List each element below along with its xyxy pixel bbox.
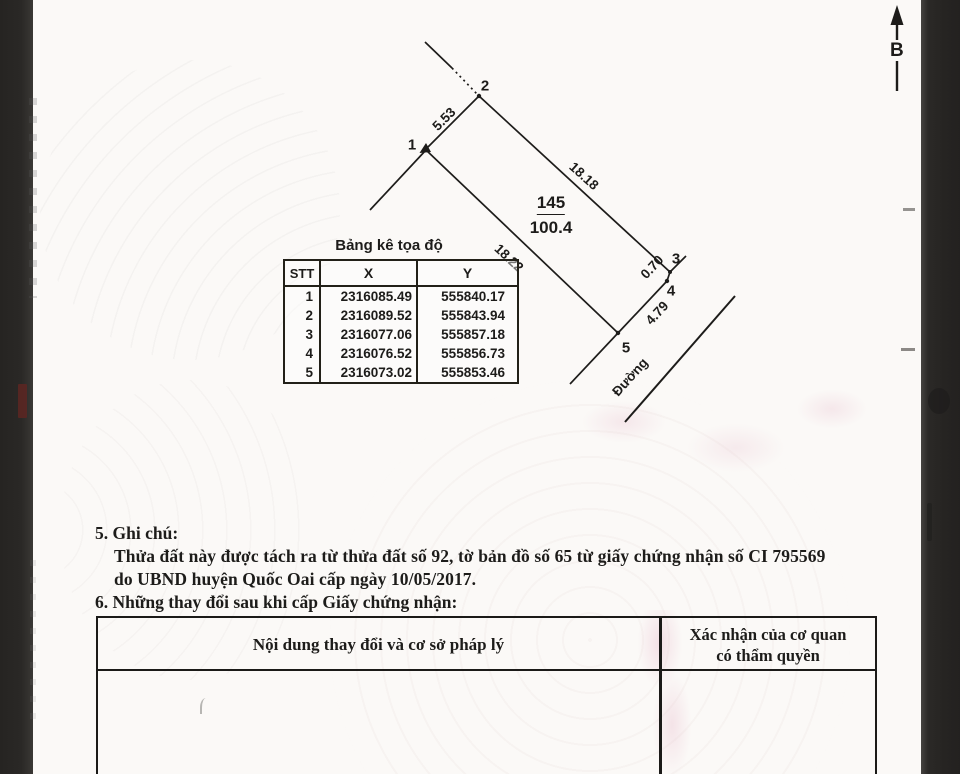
col-header-stt: STT bbox=[284, 260, 320, 286]
point-1-arrow-marker bbox=[420, 143, 432, 153]
changes-table-header-row: Nội dung thay đổi và cơ sở pháp lý Xác n… bbox=[98, 618, 875, 671]
scan-border-blob bbox=[928, 388, 950, 414]
cell-y: 555843.94 bbox=[417, 306, 518, 325]
changes-heading: 6. Những thay đổi sau khi cấp Giấy chứng… bbox=[95, 593, 457, 612]
cell-y: 555857.18 bbox=[417, 325, 518, 344]
boundary-extension-above-point2 bbox=[425, 42, 452, 68]
scan-artifact-tick bbox=[903, 208, 915, 211]
north-arrow-head bbox=[891, 5, 904, 25]
parcel-area: 100.4 bbox=[530, 218, 573, 238]
north-arrow-label: B bbox=[889, 40, 905, 61]
point-5-marker bbox=[616, 331, 620, 335]
point-4-label: 4 bbox=[667, 283, 675, 300]
cell-x: 2316076.52 bbox=[320, 344, 417, 363]
changes-table: Nội dung thay đổi và cơ sở pháp lý Xác n… bbox=[96, 616, 877, 774]
scan-artifact-tick bbox=[901, 348, 915, 351]
table-row: 3 2316077.06 555857.18 bbox=[284, 325, 518, 344]
table-row: 1 2316085.49 555840.17 bbox=[284, 286, 518, 306]
cell-stt: 2 bbox=[284, 306, 320, 325]
cell-y: 555853.46 bbox=[417, 363, 518, 383]
parcel-number: 145 bbox=[537, 193, 565, 215]
margin-text-fragments bbox=[30, 560, 36, 720]
cell-x: 2316085.49 bbox=[320, 286, 417, 306]
scanned-land-document-page: B 1 2 3 4 5 5.53 18.18 18.22 0.70 4.79 1… bbox=[0, 0, 960, 774]
changes-content-column-header: Nội dung thay đổi và cơ sở pháp lý bbox=[98, 618, 659, 671]
notes-heading: 5. Ghi chú: bbox=[95, 524, 178, 543]
cell-stt: 4 bbox=[284, 344, 320, 363]
changes-table-column-divider bbox=[659, 618, 662, 774]
changes-confirm-column-header: Xác nhận của cơ quan có thẩm quyền bbox=[661, 618, 875, 671]
cell-y: 555840.17 bbox=[417, 286, 518, 306]
boundary-extension-below-point5 bbox=[570, 333, 618, 384]
scan-border-streak bbox=[927, 503, 932, 541]
coordinate-table-block: Bảng kê tọa độ STT X Y 1 2316085.49 5558… bbox=[283, 237, 519, 384]
point-5-label: 5 bbox=[622, 340, 630, 357]
point-3-label: 3 bbox=[672, 251, 680, 268]
margin-text-fragments bbox=[29, 98, 37, 298]
red-margin-mark bbox=[18, 384, 27, 418]
point-3-marker bbox=[668, 270, 672, 274]
scan-border-right bbox=[921, 0, 960, 774]
coordinate-table: STT X Y 1 2316085.49 555840.17 2 2316089… bbox=[283, 259, 519, 384]
boundary-extension-below-point1 bbox=[370, 150, 426, 210]
confirm-header-line1: Xác nhận của cơ quan bbox=[690, 624, 847, 645]
cell-x: 2316073.02 bbox=[320, 363, 417, 383]
cell-stt: 3 bbox=[284, 325, 320, 344]
coordinate-table-header-row: STT X Y bbox=[284, 260, 518, 286]
confirm-header-line2: có thẩm quyền bbox=[716, 645, 820, 666]
cell-x: 2316077.06 bbox=[320, 325, 417, 344]
coordinate-table-title: Bảng kê tọa độ bbox=[283, 237, 495, 254]
table-row: 4 2316076.52 555856.73 bbox=[284, 344, 518, 363]
point-1-label: 1 bbox=[408, 137, 416, 154]
boundary-extension-dotted bbox=[452, 68, 477, 94]
cell-y: 555856.73 bbox=[417, 344, 518, 363]
cell-stt: 5 bbox=[284, 363, 320, 383]
cell-x: 2316089.52 bbox=[320, 306, 417, 325]
col-header-x: X bbox=[320, 260, 417, 286]
table-row: 2 2316089.52 555843.94 bbox=[284, 306, 518, 325]
col-header-y: Y bbox=[417, 260, 518, 286]
notes-body-line2: do UBND huyện Quốc Oai cấp ngày 10/05/20… bbox=[114, 570, 476, 589]
point-2-label: 2 bbox=[481, 78, 489, 95]
table-row: 5 2316073.02 555853.46 bbox=[284, 363, 518, 383]
notes-body-line1: Thửa đất này được tách ra từ thửa đất số… bbox=[114, 547, 825, 566]
cell-stt: 1 bbox=[284, 286, 320, 306]
